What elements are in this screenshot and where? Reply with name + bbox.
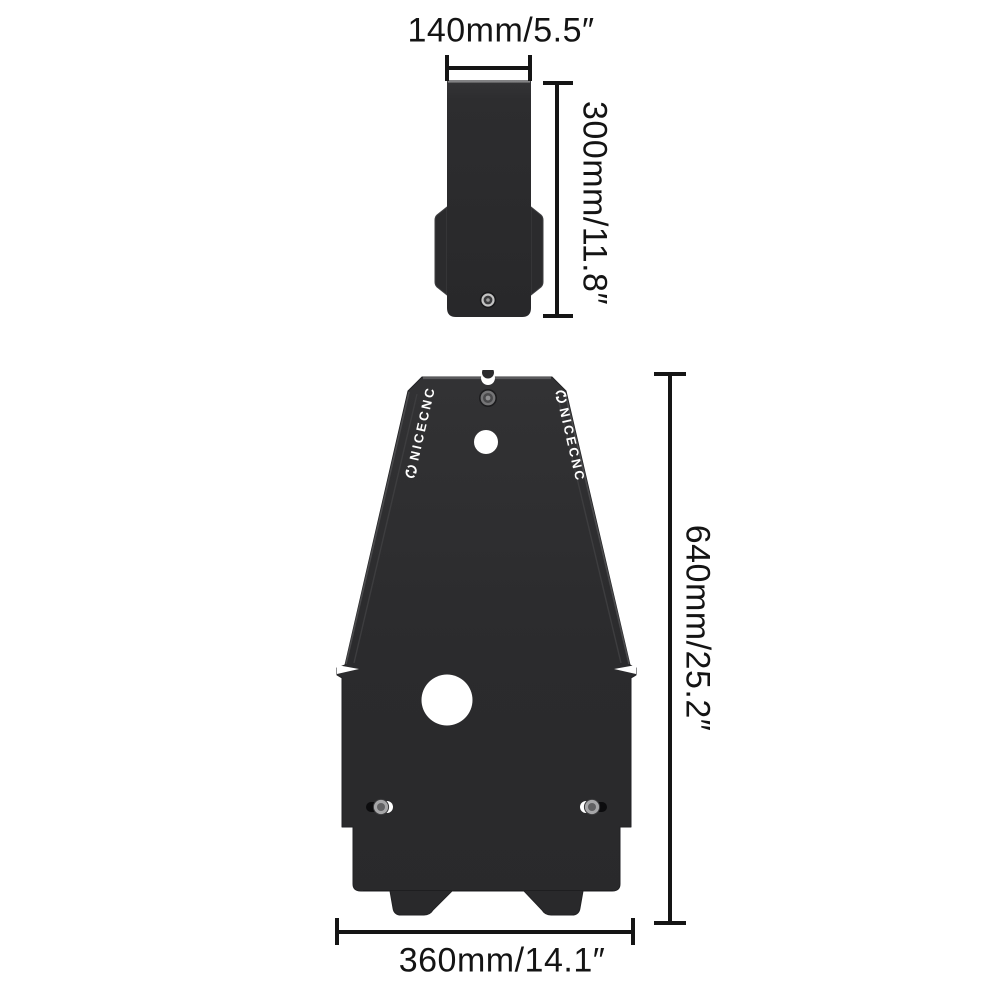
- bracket-height-dim-bar-top: [543, 81, 573, 85]
- bracket-right-wing: [531, 207, 543, 295]
- bracket-body: [447, 80, 531, 317]
- plate-top-notch: [481, 370, 495, 385]
- skid-plate-body: [337, 377, 636, 915]
- bracket-width-label: 140mm/5.5″: [407, 12, 594, 49]
- bracket-height-dim-line: [555, 83, 559, 318]
- bracket-top-highlight: [448, 80, 530, 83]
- plate-top-bolt-icon: [479, 389, 497, 407]
- plate-width-dim-line: [337, 930, 635, 934]
- bracket-left-wing: [435, 207, 447, 295]
- bracket-height-label: 300mm/11.8″: [575, 101, 612, 305]
- nicecnc-icon: [403, 464, 419, 480]
- plate-upper-hole: [474, 430, 498, 454]
- plate-height-dim-bar-bottom: [654, 921, 686, 925]
- plate-width-label: 360mm/14.1″: [399, 942, 606, 979]
- bracket-width-dim-tick-left: [445, 55, 449, 81]
- bracket-height-dim-bar-bottom: [543, 314, 573, 318]
- plate-height-dim-line: [668, 374, 672, 925]
- plate-height-label: 640mm/25.2″: [678, 525, 715, 732]
- nicecnc-icon: [554, 389, 570, 405]
- bracket-width-dim-line: [447, 66, 532, 70]
- plate-height-dim-bar-top: [654, 372, 686, 376]
- plate-width-dim-tick-left: [335, 918, 339, 945]
- bracket-part: [430, 76, 546, 322]
- product-dimension-diagram: NICECNC NICECNC 140mm/5.5″ 300mm/11.8″ 6…: [0, 0, 1000, 1000]
- skid-plate-part: [333, 370, 643, 922]
- plate-main-hole: [422, 675, 473, 726]
- plate-width-dim-tick-right: [631, 918, 635, 945]
- bracket-width-dim-tick-right: [528, 55, 532, 81]
- bracket-bolt-icon: [480, 292, 496, 308]
